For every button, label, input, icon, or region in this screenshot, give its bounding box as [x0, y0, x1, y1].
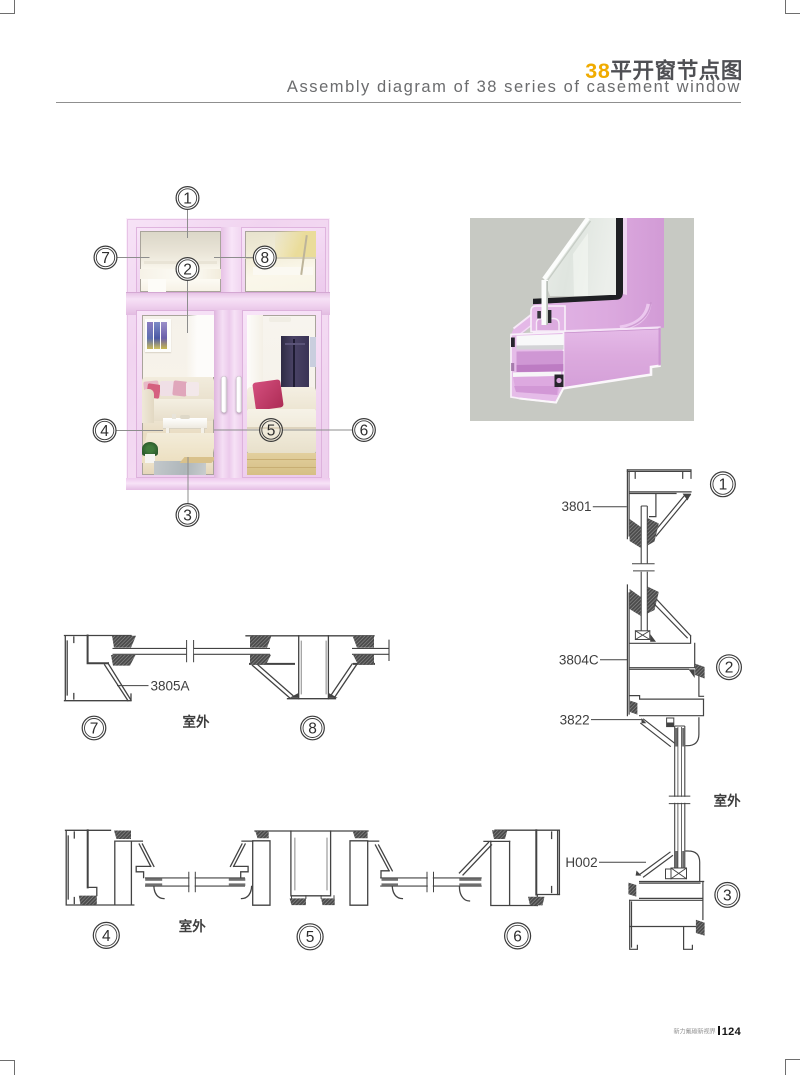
svg-text:室外: 室外: [183, 713, 210, 729]
svg-text:7: 7: [101, 250, 110, 267]
svg-text:5: 5: [267, 422, 276, 439]
svg-text:1: 1: [719, 477, 728, 494]
svg-text:室外: 室外: [179, 918, 206, 934]
svg-text:5: 5: [306, 929, 315, 946]
svg-text:7: 7: [90, 720, 99, 737]
svg-text:2: 2: [183, 261, 192, 278]
svg-text:6: 6: [513, 928, 522, 945]
svg-text:1: 1: [183, 190, 192, 207]
svg-text:H002: H002: [565, 855, 597, 870]
svg-text:3805A: 3805A: [151, 678, 190, 693]
svg-text:2: 2: [725, 660, 734, 677]
svg-text:8: 8: [308, 720, 317, 737]
svg-text:室外: 室外: [714, 793, 742, 809]
svg-text:3801: 3801: [561, 499, 591, 514]
svg-text:4: 4: [102, 928, 111, 945]
svg-text:6: 6: [360, 422, 369, 439]
svg-text:3804C: 3804C: [559, 653, 599, 668]
svg-text:3: 3: [183, 507, 192, 524]
svg-text:4: 4: [100, 423, 109, 440]
svg-text:3: 3: [723, 887, 732, 904]
svg-text:8: 8: [260, 250, 269, 267]
svg-text:3822: 3822: [560, 712, 590, 727]
